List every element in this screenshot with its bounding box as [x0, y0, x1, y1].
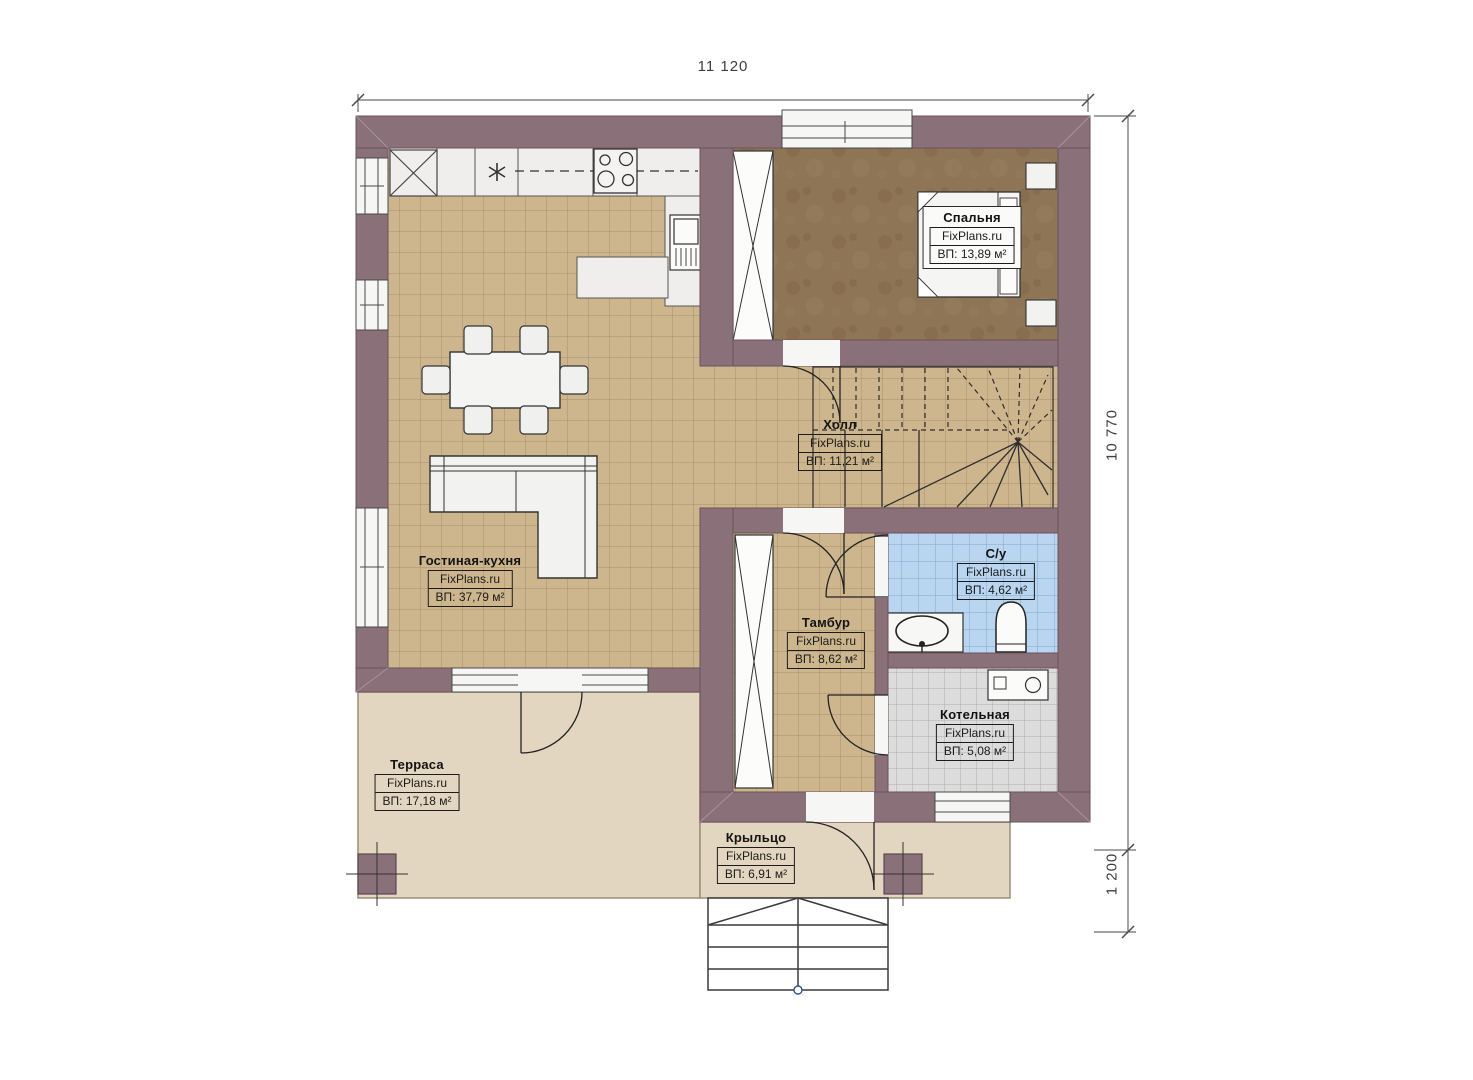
- room-label-terrace: Терраса FixPlans.ru ВП: 17,18 м²: [375, 757, 460, 811]
- room-area: ВП: 13,89 м²: [931, 246, 1014, 263]
- fridge-icon: [670, 215, 702, 270]
- window-left-3: [356, 508, 388, 627]
- room-name: Крыльцо: [717, 830, 795, 845]
- window-boiler-south: [935, 792, 1010, 822]
- brand-watermark: FixPlans.ru: [429, 571, 512, 589]
- room-name: Тамбур: [787, 615, 865, 630]
- room-label-tambour: Тамбур FixPlans.ru ВП: 8,62 м²: [787, 615, 865, 669]
- stove-icon: [594, 149, 637, 193]
- room-label-bathroom: С/у FixPlans.ru ВП: 4,62 м²: [957, 546, 1035, 600]
- brand-watermark: FixPlans.ru: [788, 633, 864, 651]
- brand-watermark: FixPlans.ru: [376, 775, 459, 793]
- room-info-box: FixPlans.ru ВП: 13,89 м²: [930, 227, 1015, 264]
- room-area: ВП: 17,18 м²: [376, 793, 459, 810]
- room-area: ВП: 4,62 м²: [958, 582, 1034, 599]
- wardrobe-tambour-icon: [735, 535, 773, 788]
- room-info-box: FixPlans.ru ВП: 11,21 м²: [798, 434, 882, 471]
- chair: [464, 326, 492, 354]
- room-name: Гостиная-кухня: [419, 553, 521, 568]
- vanity-sink-icon: [885, 613, 963, 653]
- room-info-box: FixPlans.ru ВП: 17,18 м²: [375, 774, 460, 811]
- room-info-box: FixPlans.ru ВП: 4,62 м²: [957, 563, 1035, 600]
- room-name: Котельная: [936, 707, 1014, 722]
- brand-watermark: FixPlans.ru: [931, 228, 1014, 246]
- chair: [464, 406, 492, 434]
- brand-watermark: FixPlans.ru: [799, 435, 881, 453]
- boiler-unit-icon: [988, 670, 1048, 700]
- wall-top: [356, 116, 1090, 148]
- dimension-right: [1094, 110, 1136, 938]
- room-info-box: FixPlans.ru ВП: 6,91 м²: [717, 847, 795, 884]
- dimension-top: [352, 94, 1094, 112]
- nightstand: [1026, 300, 1056, 326]
- window-left-1: [356, 158, 388, 214]
- dimension-width-label: 11 120: [698, 58, 749, 75]
- dimension-porch-label: 1 200: [1104, 853, 1121, 896]
- room-name: Спальня: [930, 210, 1015, 225]
- room-info-box: FixPlans.ru ВП: 8,62 м²: [787, 632, 865, 669]
- brand-watermark: FixPlans.ru: [937, 725, 1013, 743]
- chair: [520, 326, 548, 354]
- toilet-icon: [996, 602, 1026, 652]
- window-living-south: [452, 668, 648, 692]
- floor-plan-svg: [0, 0, 1473, 1080]
- room-name: Холл: [798, 417, 882, 432]
- room-info-box: FixPlans.ru ВП: 37,79 м²: [428, 570, 513, 607]
- room-area: ВП: 11,21 м²: [799, 453, 881, 470]
- room-info-box: FixPlans.ru ВП: 5,08 м²: [936, 724, 1014, 761]
- room-label-bedroom: Спальня FixPlans.ru ВП: 13,89 м²: [923, 206, 1022, 269]
- room-name: С/у: [957, 546, 1035, 561]
- wall-bottom-entrance: [700, 792, 1090, 822]
- floor-plan-page: 11 120 10 770 1 200 Спальня FixPlans.ru …: [0, 0, 1473, 1080]
- wall-hall-south: [700, 508, 1058, 533]
- room-name: Терраса: [375, 757, 460, 772]
- room-area: ВП: 8,62 м²: [788, 651, 864, 668]
- wall-bedroom-south: [733, 340, 1058, 366]
- brand-watermark: FixPlans.ru: [718, 848, 794, 866]
- room-label-hall: Холл FixPlans.ru ВП: 11,21 м²: [798, 417, 882, 471]
- brand-watermark: FixPlans.ru: [958, 564, 1034, 582]
- room-area: ВП: 37,79 м²: [429, 589, 512, 606]
- room-label-living-kitchen: Гостиная-кухня FixPlans.ru ВП: 37,79 м²: [419, 553, 521, 607]
- dimension-height-label: 10 770: [1104, 409, 1121, 461]
- room-area: ВП: 5,08 м²: [937, 743, 1013, 760]
- wall-tambour-west: [700, 508, 733, 792]
- chair: [422, 366, 450, 394]
- nightstand: [1026, 163, 1056, 189]
- porch-steps: [708, 898, 888, 994]
- chair: [520, 406, 548, 434]
- dining-table: [450, 352, 560, 408]
- wall-right: [1058, 148, 1090, 822]
- window-left-2: [356, 280, 388, 330]
- wardrobe-bedroom-icon: [733, 151, 773, 341]
- chair: [560, 366, 588, 394]
- window-top-bedroom: [782, 110, 912, 148]
- wall-kitchen-divider: [700, 148, 733, 366]
- room-label-boiler: Котельная FixPlans.ru ВП: 5,08 м²: [936, 707, 1014, 761]
- room-area: ВП: 6,91 м²: [718, 866, 794, 883]
- wall-bathroom-south: [888, 653, 1058, 668]
- room-label-porch: Крыльцо FixPlans.ru ВП: 6,91 м²: [717, 830, 795, 884]
